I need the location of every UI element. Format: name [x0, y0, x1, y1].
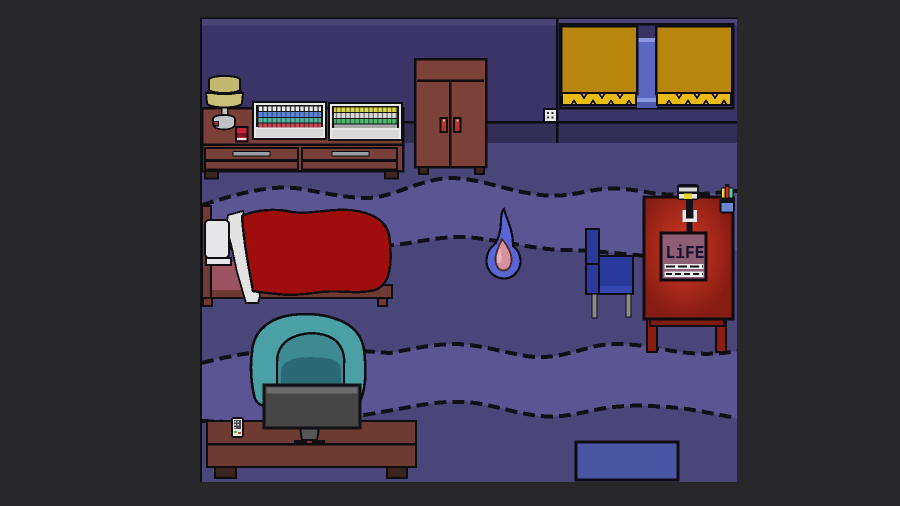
svg-text:LiFE: LiFE [666, 243, 705, 264]
